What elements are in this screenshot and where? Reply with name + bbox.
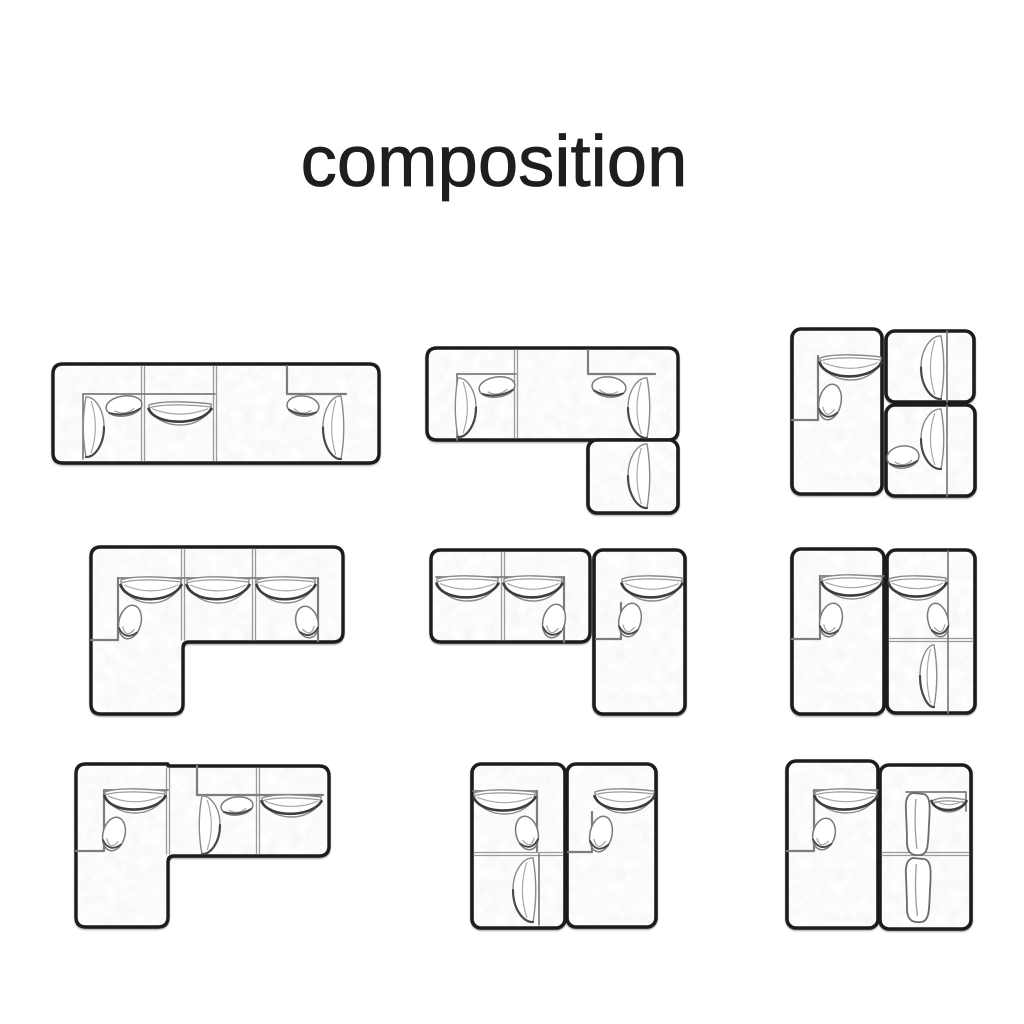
svg-text:composition: composition [301, 121, 688, 202]
